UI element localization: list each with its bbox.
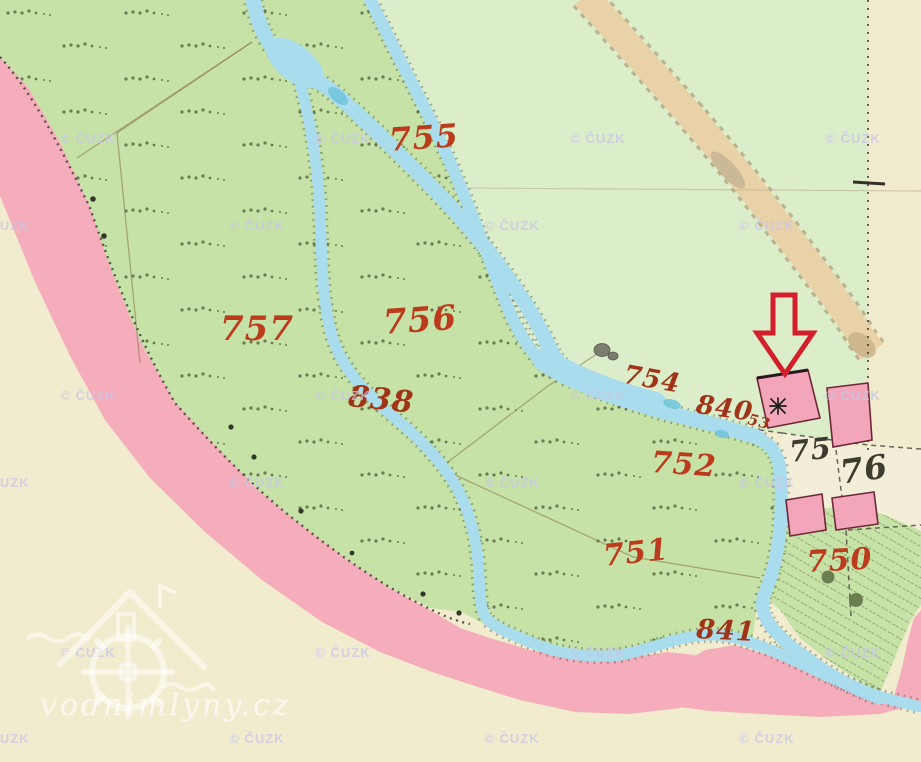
- boundary-stone: [251, 454, 256, 459]
- parcel-label-750: 750: [806, 545, 873, 578]
- parcel-label-752: 752: [650, 448, 718, 483]
- cuzk-watermark: © ČUZK: [484, 731, 539, 746]
- cuzk-watermark: © ČUZK: [0, 218, 30, 233]
- cuzk-watermark: © ČUZK: [570, 131, 625, 146]
- cuzk-watermark: © ČUZK: [825, 388, 880, 403]
- house-number-75: 75: [788, 434, 833, 467]
- tree-symbol: [849, 593, 863, 607]
- cuzk-watermark: © ČUZK: [0, 475, 30, 490]
- tree-symbol: [594, 344, 610, 357]
- cuzk-watermark: © ČUZK: [60, 131, 115, 146]
- parcel-label-756: 756: [382, 301, 458, 340]
- cuzk-watermark: © ČUZK: [570, 388, 625, 403]
- boundary-stone: [90, 196, 96, 202]
- house-number-76: 76: [838, 449, 890, 488]
- cuzk-watermark: © ČUZK: [60, 388, 115, 403]
- tree-symbol: [608, 352, 618, 360]
- cuzk-watermark: © ČUZK: [739, 475, 794, 490]
- boundary-stone: [101, 233, 107, 239]
- cuzk-watermark: © ČUZK: [825, 131, 880, 146]
- cadastral-map[interactable]: 755 757 756 752 751 750 838 754 840 53 8…: [0, 0, 921, 762]
- boundary-stone: [228, 424, 233, 429]
- cuzk-watermark: © ČUZK: [229, 218, 284, 233]
- parcel-label-751: 751: [602, 535, 670, 572]
- boundary-stone: [456, 610, 461, 615]
- cuzk-watermark: © ČUZK: [484, 218, 539, 233]
- waterway-label-841: 841: [696, 616, 757, 646]
- building-south-west: [786, 494, 826, 536]
- waterway-label-840: 840: [694, 392, 754, 426]
- site-watermark-text: vodnimlyny.cz: [40, 688, 292, 723]
- boundary-stone: [420, 591, 425, 596]
- boundary-stone: [298, 508, 303, 513]
- boundary-tick-mark: [853, 182, 885, 184]
- cuzk-watermark: © ČUZK: [739, 218, 794, 233]
- boundary-stone: [350, 551, 355, 556]
- mill-wheel-symbol: [770, 398, 786, 414]
- cuzk-watermark: © ČUZK: [315, 131, 370, 146]
- building-south-east: [832, 492, 878, 530]
- cuzk-watermark: © ČUZK: [315, 388, 370, 403]
- cuzk-watermark: © ČUZK: [315, 645, 370, 660]
- cuzk-watermark: © ČUZK: [739, 731, 794, 746]
- cuzk-watermark: © ČUZK: [570, 645, 625, 660]
- cuzk-watermark: © ČUZK: [825, 645, 880, 660]
- parcel-label-755: 755: [388, 119, 460, 156]
- parcel-label-757: 757: [220, 312, 294, 346]
- cuzk-watermark: © ČUZK: [229, 731, 284, 746]
- cuzk-watermark: © ČUZK: [484, 475, 539, 490]
- cuzk-watermark: © ČUZK: [229, 475, 284, 490]
